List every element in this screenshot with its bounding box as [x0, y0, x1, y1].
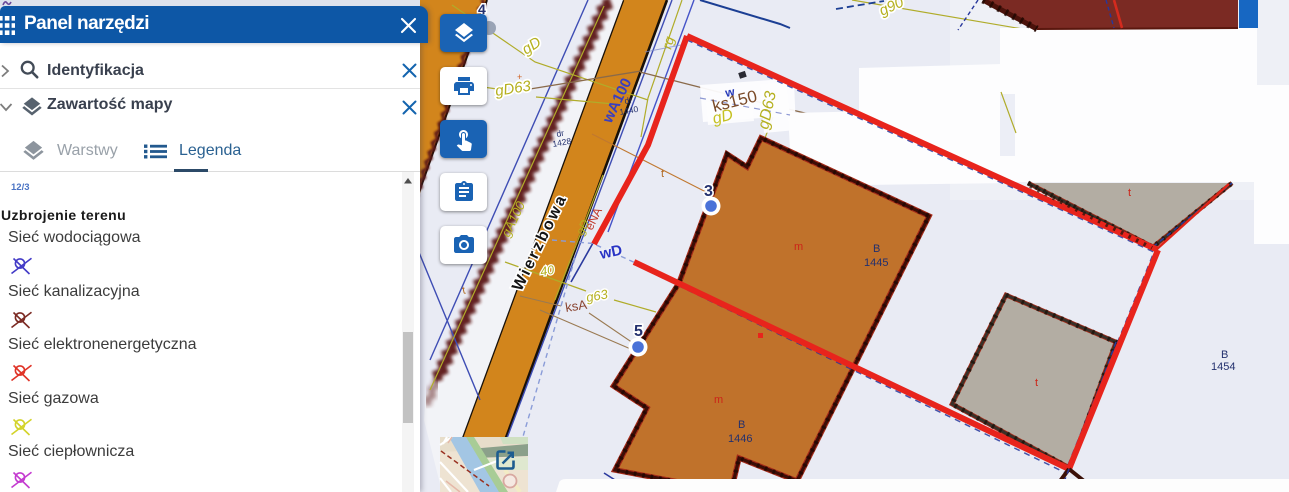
svg-text:m: m	[714, 394, 723, 406]
svg-text:t: t	[579, 228, 582, 239]
svg-text:1446: 1446	[728, 433, 752, 445]
svg-text:1454: 1454	[1211, 361, 1235, 373]
svg-text:40: 40	[539, 263, 555, 279]
svg-text:B: B	[1221, 349, 1228, 361]
svg-text:B: B	[738, 419, 745, 431]
svg-text:t: t	[1035, 377, 1038, 389]
svg-text:+: +	[517, 72, 522, 82]
svg-text:5: 5	[634, 323, 643, 340]
svg-text:m: m	[794, 241, 803, 253]
svg-text:B: B	[873, 243, 880, 255]
svg-text:t: t	[661, 168, 664, 180]
svg-text:1445: 1445	[864, 257, 888, 269]
svg-text:t: t	[1128, 187, 1131, 199]
